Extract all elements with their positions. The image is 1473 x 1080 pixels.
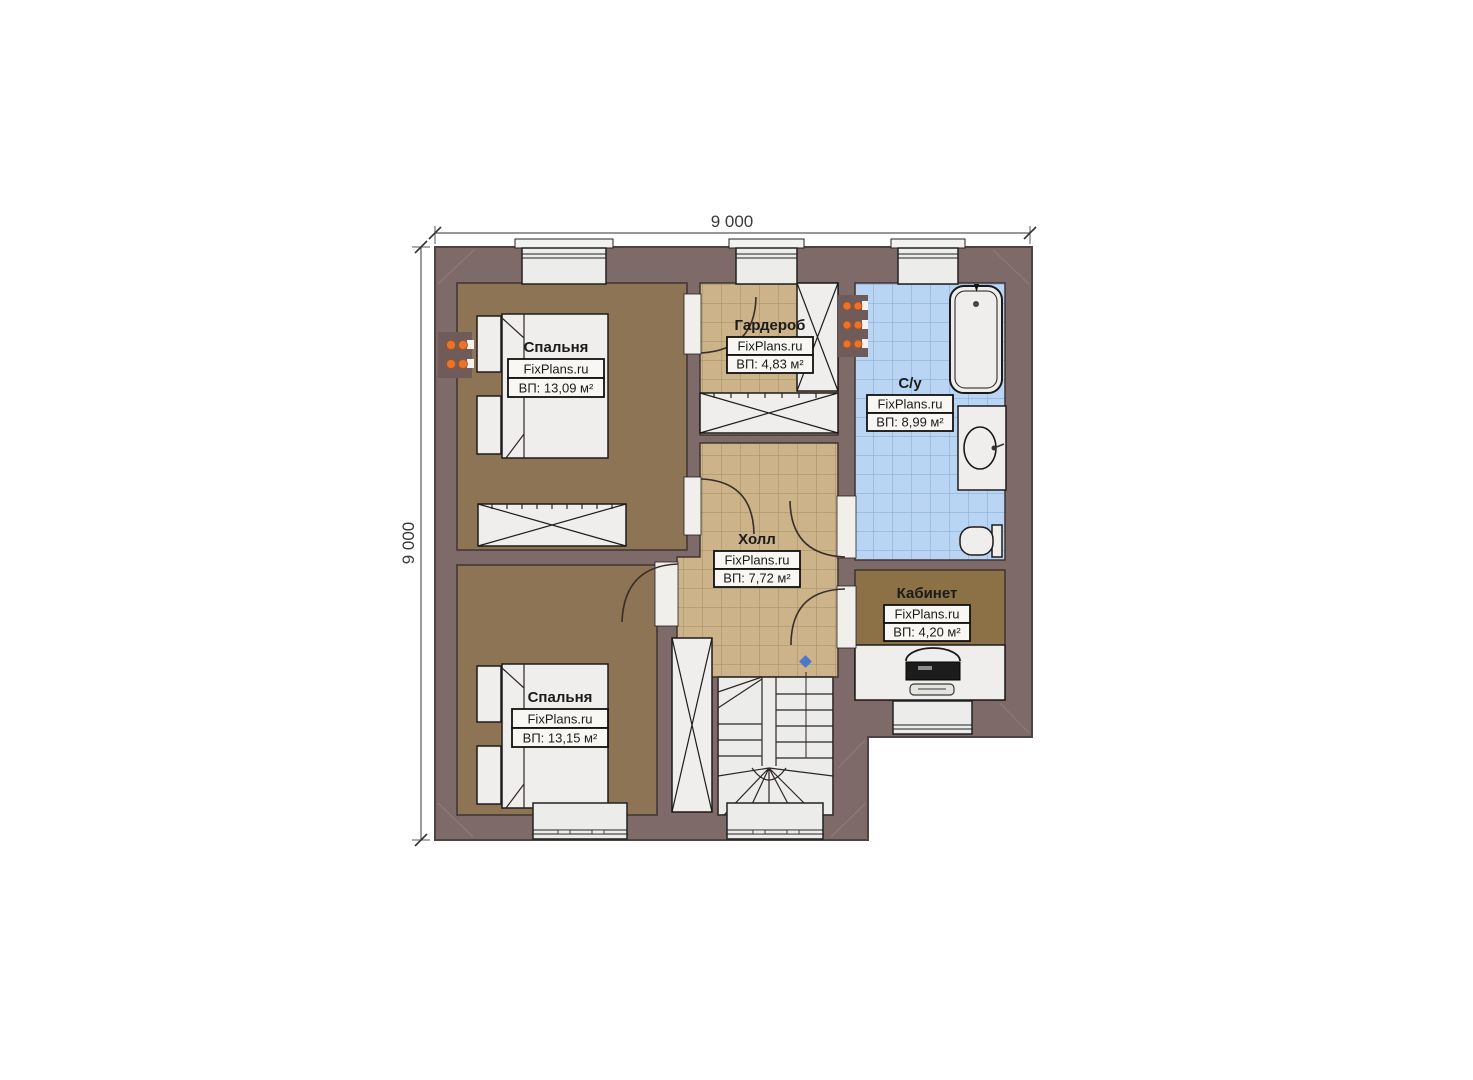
floor-plan-page: 9 000 9 000 [0, 0, 1473, 1080]
room-name: Спальня [524, 339, 589, 356]
room-area: ВП: 13,09 м² [519, 381, 594, 396]
room-area: ВП: 4,20 м² [893, 625, 961, 640]
window [893, 701, 972, 734]
radiator [438, 332, 474, 378]
bathtub [950, 284, 1002, 393]
room-name: Гардероб [735, 317, 806, 334]
room-name: Кабинет [897, 585, 958, 602]
room-brand: FixPlans.ru [527, 712, 592, 727]
room-area: ВП: 4,83 м² [736, 357, 804, 372]
room-label-office: Кабинет FixPlans.ru ВП: 4,20 м² [884, 585, 970, 641]
window [729, 239, 804, 284]
nightstand [477, 746, 501, 804]
dimension-top-label: 9 000 [711, 212, 754, 231]
window [515, 239, 613, 284]
window [891, 239, 965, 284]
floor-plan-drawing: 9 000 9 000 [0, 0, 1473, 1080]
nightstand [477, 316, 501, 372]
window [533, 803, 627, 839]
nightstand [477, 666, 501, 722]
radiator [838, 295, 868, 357]
toilet [960, 525, 1002, 557]
room-brand: FixPlans.ru [877, 397, 942, 412]
wardrobe-cabinet [700, 393, 838, 433]
nightstand [477, 396, 501, 454]
room-label-wardrobe: Гардероб FixPlans.ru ВП: 4,83 м² [727, 317, 813, 373]
room-area: ВП: 13,15 м² [523, 731, 598, 746]
room-brand: FixPlans.ru [894, 607, 959, 622]
monitor [906, 662, 960, 680]
dimension-left-label: 9 000 [399, 522, 418, 565]
room-brand: FixPlans.ru [737, 339, 802, 354]
sink [958, 406, 1006, 490]
room-brand: FixPlans.ru [523, 362, 588, 377]
wardrobe-cabinet [672, 638, 712, 812]
room-name: С/у [898, 375, 922, 392]
wardrobe-cabinet [478, 504, 626, 546]
room-area: ВП: 7,72 м² [723, 571, 791, 586]
office-fixtures [855, 645, 1005, 700]
dimension-left: 9 000 [399, 241, 430, 846]
room-area: ВП: 8,99 м² [876, 415, 944, 430]
room-name: Холл [738, 531, 776, 548]
room-name: Спальня [528, 689, 593, 706]
room-brand: FixPlans.ru [724, 553, 789, 568]
window [727, 803, 823, 839]
